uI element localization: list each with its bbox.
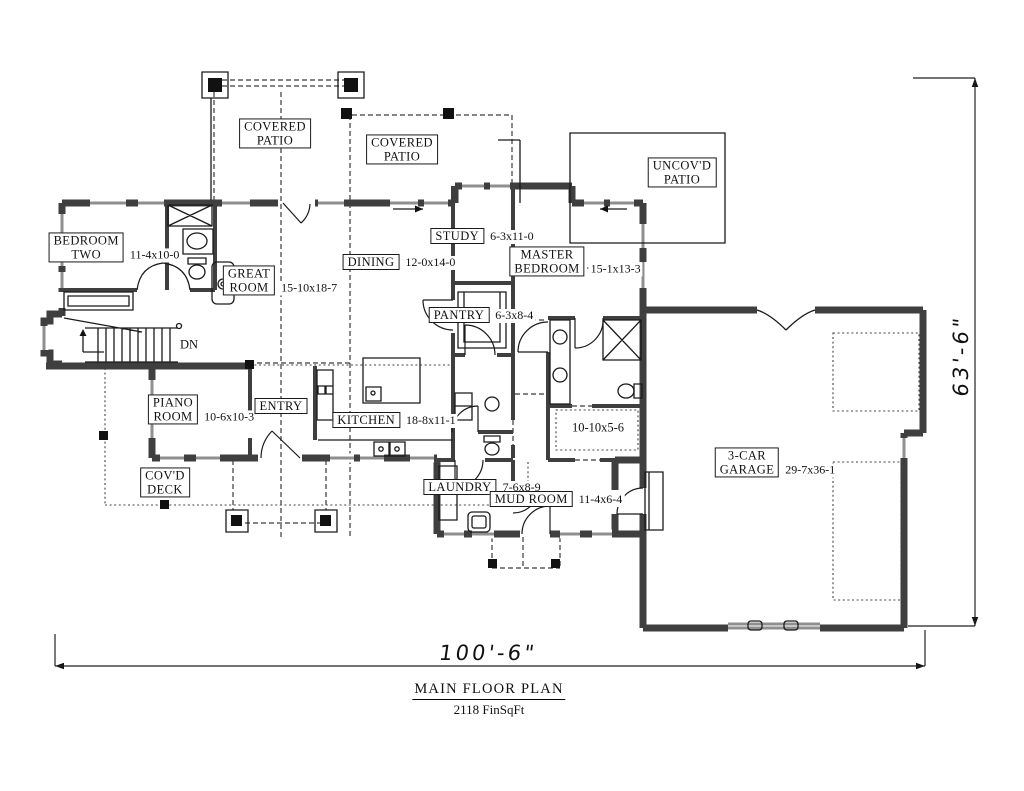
room-label-covered-patio-west: COVERED PATIO — [239, 118, 319, 149]
room-name: MASTER BEDROOM — [509, 246, 584, 276]
room-dim: 10-6x10-3 — [202, 411, 256, 425]
room-name: LAUNDRY — [423, 479, 496, 495]
room-name: GREAT ROOM — [223, 265, 275, 295]
room-label-pantry: PANTRY 6-3x8-4 — [429, 306, 536, 324]
room-label-study: STUDY 6-3x11-0 — [430, 227, 535, 245]
room-name: COVERED PATIO — [366, 134, 438, 164]
room-label-covered-deck: COV'D DECK — [140, 467, 190, 498]
room-label-covered-patio-east: COVERED PATIO — [366, 134, 446, 165]
room-label-master-bedroom: MASTER BEDROOM 15-1x13-3 — [509, 246, 642, 277]
room-dim: 15-10x18-7 — [279, 282, 339, 296]
room-dim: 29-7x36-1 — [783, 464, 837, 478]
room-name: PIANO ROOM — [148, 394, 198, 424]
room-label-mud-room: MUD ROOM 11-4x6-4 — [490, 490, 625, 508]
room-name: DINING — [343, 254, 400, 270]
room-label-entry: ENTRY — [255, 397, 308, 415]
overall-height-dimension: 63'-6" — [949, 314, 973, 398]
title-block: MAIN FLOOR PLAN 2118 FinSqFt — [412, 680, 565, 718]
stairs-down-label: DN — [180, 338, 198, 353]
room-dim: 15-1x13-3 — [589, 263, 643, 277]
room-label-garage: 3-CAR GARAGE 29-7x36-1 — [715, 447, 837, 478]
room-dim: 12-0x14-0 — [403, 256, 457, 270]
room-label-great-room: GREAT ROOM 15-10x18-7 — [223, 265, 339, 296]
room-dim: 6-3x8-4 — [493, 309, 535, 323]
room-label-dining: DINING 12-0x14-0 — [343, 253, 458, 271]
room-name: STUDY — [430, 228, 484, 244]
room-label-bedroom-two: BEDROOM TWO 11-4x10-0 — [49, 232, 182, 263]
room-label-master-closet: 10-10x5-6 — [572, 421, 624, 436]
room-dim: 11-4x10-0 — [128, 249, 182, 263]
room-dim: 11-4x6-4 — [577, 493, 625, 507]
plan-area: 2118 FinSqFt — [412, 702, 565, 718]
room-dim: 18-8x11-1 — [404, 414, 458, 428]
room-label-uncovered-patio: UNCOV'D PATIO — [648, 157, 725, 188]
overall-width-dimension: 100'-6" — [438, 641, 539, 665]
room-name: UNCOV'D PATIO — [648, 157, 717, 187]
room-name: KITCHEN — [332, 412, 400, 428]
room-name: ENTRY — [255, 398, 308, 414]
room-name: 3-CAR GARAGE — [715, 447, 779, 477]
posts-and-arrowheads — [55, 78, 978, 669]
room-name: PANTRY — [429, 307, 490, 323]
room-label-kitchen: KITCHEN 18-8x11-1 — [332, 411, 457, 429]
room-name: COV'D DECK — [140, 467, 190, 497]
floor-plan-page: COVERED PATIO COVERED PATIO UNCOV'D PATI… — [0, 0, 1024, 791]
room-dim: 6-3x11-0 — [488, 230, 536, 244]
plan-title: MAIN FLOOR PLAN — [412, 681, 565, 700]
room-name: COVERED PATIO — [239, 118, 311, 148]
room-name: MUD ROOM — [490, 491, 573, 507]
room-name: BEDROOM TWO — [49, 232, 124, 262]
room-label-piano-room: PIANO ROOM 10-6x10-3 — [148, 394, 256, 425]
